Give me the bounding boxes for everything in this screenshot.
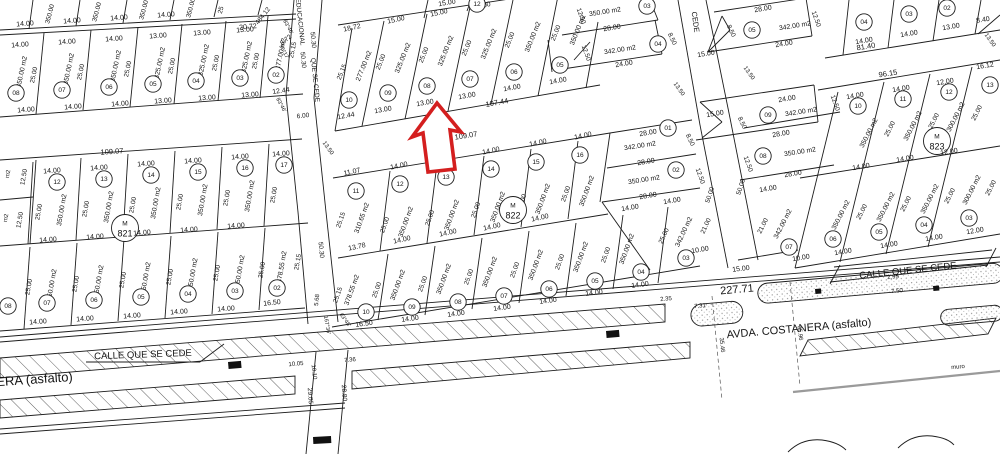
dimension-label: 25.15 xyxy=(336,63,349,81)
dimension-label: 25.00 xyxy=(600,246,612,264)
parcel-number: 10 xyxy=(345,97,353,104)
dimension-label: 14.00 xyxy=(880,240,899,250)
parcel-number: 11 xyxy=(900,96,907,103)
dimension-label: 14.00 xyxy=(834,247,853,257)
parcel-number: 08 xyxy=(4,303,12,310)
dimension-label: 227.71 xyxy=(720,282,755,297)
culvert-mark xyxy=(815,288,821,294)
parcel-number: 06 xyxy=(90,297,98,304)
parcel-number: 09 xyxy=(408,304,416,311)
dimension-label: 350.00 xyxy=(91,1,103,22)
parcel-number: 05 xyxy=(137,294,145,301)
dimension-label: 350.00 m2 xyxy=(56,193,69,226)
dimension-label: 14.00 xyxy=(631,281,649,290)
culvert-mark xyxy=(606,330,620,338)
dimension-label: 13.50 xyxy=(983,32,997,48)
boundary-line xyxy=(566,223,576,296)
shore-arc xyxy=(898,436,954,448)
dimension-label: 14.00 xyxy=(447,310,465,319)
parcel-number: 13 xyxy=(100,176,108,183)
culvert-mark xyxy=(933,285,939,291)
dimension-label: 325.00 m2 xyxy=(394,42,413,75)
dimension-label: 350.00 m2 xyxy=(397,206,415,239)
dimension-label: 50.30 xyxy=(298,52,307,69)
parcel-number: 03 xyxy=(231,288,239,295)
dimension-label: 378.55 m2 xyxy=(343,274,361,307)
boundary-line xyxy=(708,36,812,52)
dimension-label: 350.00 m2 xyxy=(63,52,77,85)
dimension-label: 350.00 m2 xyxy=(481,256,499,289)
cadastral-plan-canvas: 350.00350.00350.00350.0025484.1214.0014.… xyxy=(0,0,1000,454)
cadastral-plan: 350.00350.00350.00350.0025484.1214.0014.… xyxy=(0,0,1000,454)
shore-arc xyxy=(788,440,846,452)
dimension-label: 350.00 m2 xyxy=(435,263,453,296)
street-label-que-se-cede: QUE SE CEDE xyxy=(309,58,321,104)
dimension-label: 13.00 xyxy=(241,91,259,99)
dimension-label: 350.00 m2 xyxy=(103,190,116,223)
parcel-number: 03 xyxy=(643,3,651,10)
dimension-label: 25.00 xyxy=(269,186,279,204)
dimension-label: 25.00 xyxy=(463,268,475,286)
dimension-label: 11.07 xyxy=(343,167,361,177)
parcel-number: 04 xyxy=(184,291,192,298)
dimension-label: 7.31 xyxy=(694,303,707,310)
dimension-label: 14.00 xyxy=(585,289,603,298)
parcel-number: 05 xyxy=(875,229,883,236)
dimension-label: 13.00 xyxy=(198,94,216,102)
parcel-number: 13 xyxy=(442,174,450,181)
parcel-number: 16 xyxy=(576,152,584,159)
parcel-number: 02 xyxy=(943,5,951,12)
parcel-number: 03 xyxy=(905,11,913,18)
dimension-label: 14.00 xyxy=(105,35,123,43)
dimension-label: 25.00 xyxy=(118,271,128,289)
dimension-label: 16.12 xyxy=(976,61,995,71)
parcel-number: 14 xyxy=(147,172,155,179)
dimension-label: 25.00 xyxy=(211,54,221,72)
dimension-label: 13.00 xyxy=(193,29,211,37)
dimension-label: 350.00 m2 xyxy=(876,191,897,223)
dimension-label: 25.00 xyxy=(554,253,566,271)
parcel-number: 06 xyxy=(105,84,113,91)
dimension-label: 25.00 xyxy=(34,203,44,221)
dimension-label: 25.00 xyxy=(76,63,86,81)
dimension-label: 12.44 xyxy=(272,87,290,96)
dimension-label: 2.35 xyxy=(660,296,673,303)
dimension-label: 14.00 xyxy=(549,76,568,86)
dimension-label: 12.50 xyxy=(742,155,754,173)
wall-line xyxy=(793,371,1000,392)
dimension-label: 350.00 m2 xyxy=(628,174,661,186)
dimension-label: 14.00 xyxy=(110,14,128,22)
dimension-label: 25.00 xyxy=(509,261,521,279)
dimension-label: 28.00 xyxy=(784,169,803,179)
dimension-label: 14.00 xyxy=(503,83,522,93)
dimension-label: 12.50 xyxy=(694,167,706,185)
dimension-label: 25.00 xyxy=(970,104,984,122)
dimension-label: 35.46 xyxy=(718,337,726,353)
parcel-number: 14 xyxy=(487,166,495,173)
dimension-label: 342.00 m2 xyxy=(773,208,794,240)
parcel-number: 16 xyxy=(241,165,249,172)
dimension-label: 14.00 xyxy=(482,146,501,157)
dimension-label: 350.00 m2 xyxy=(920,183,941,215)
dimension-label: 13.00 xyxy=(416,98,435,108)
boundary-line xyxy=(700,85,814,102)
parcel-number: 08 xyxy=(423,83,431,90)
dimension-label: 300.00 m2 xyxy=(946,101,967,133)
dimension-label: 15.00 xyxy=(706,109,725,119)
parcel-number: 09 xyxy=(764,112,772,119)
boundary-line xyxy=(696,122,818,140)
dimension-label: 12.50 xyxy=(19,168,29,186)
dimension-label: 15.00 xyxy=(430,8,449,19)
dimension-label: 25.00 xyxy=(984,179,998,197)
dimension-label: 12.50 xyxy=(15,211,25,229)
dimension-label: 14.00 xyxy=(621,203,640,213)
parcel-number: 07 xyxy=(500,293,508,300)
dimension-label: 10.00 xyxy=(792,253,811,263)
dimension-label: 342.00 m2 xyxy=(779,20,812,32)
dimension-label: 14.00 xyxy=(157,11,175,19)
dimension-label: 350.00 m2 xyxy=(389,269,407,302)
parcel-number: 04 xyxy=(192,78,200,85)
dimension-label: 14.00 xyxy=(63,17,81,25)
boundary-line xyxy=(888,0,894,48)
parcel-number: 12 xyxy=(945,89,953,96)
parcel-number: 12 xyxy=(53,179,61,186)
dimension-label: 350.00 m2 xyxy=(150,186,163,219)
dimension-label: 14.00 xyxy=(483,222,502,233)
boundary-line xyxy=(326,212,338,322)
dimension-label: 28.00 xyxy=(637,157,656,167)
dimension-label: 21.00 xyxy=(756,217,770,235)
dimension-label: 350.00 m2 xyxy=(197,183,210,216)
dimension-label: 28.00 xyxy=(639,128,658,138)
dimension-label: 14.00 xyxy=(900,29,919,39)
dimension-label: 8.40 xyxy=(976,16,991,25)
dimension-label: 25.00 xyxy=(71,275,81,293)
dimension-label: 25.15 xyxy=(335,211,347,229)
dimension-label: 13.00 xyxy=(236,26,254,34)
parcel-number: 05 xyxy=(748,27,756,34)
parcel-number: 13 xyxy=(986,82,994,89)
parcel-number: 17 xyxy=(280,162,288,169)
boundary-line xyxy=(0,197,33,200)
dimension-label: 7.36 xyxy=(344,357,357,364)
dimension-label: 25.00 xyxy=(658,227,671,245)
dimension-label: 25.00 xyxy=(379,216,391,234)
dimension-label: 50.00 xyxy=(735,178,747,196)
dimension-label: 350.00 m2 xyxy=(589,6,622,18)
block-number-m822: M xyxy=(510,203,515,210)
dimension-label: 25.00 xyxy=(470,201,482,219)
street-label-cede: CEDE xyxy=(690,11,702,33)
street-label-costanera: COSTANERA (asfalto) xyxy=(0,369,73,393)
parcel-number: 02 xyxy=(273,285,281,292)
boundary-line xyxy=(260,16,268,98)
dimension-label: 14.00 xyxy=(170,308,188,316)
boundary-line xyxy=(424,0,428,18)
parcel-number: 04 xyxy=(920,222,928,229)
parcel-number: 06 xyxy=(829,236,837,243)
boundary-line xyxy=(933,0,939,41)
dimension-label: m2 xyxy=(3,213,10,223)
boundary-line xyxy=(556,54,662,70)
dimension-label: 14.00 xyxy=(76,315,94,323)
culvert-mark xyxy=(313,436,331,444)
boundary-line xyxy=(333,133,610,178)
dimension-label: 325.00 m2 xyxy=(154,46,168,79)
dimension-label: 25.15 xyxy=(293,253,303,271)
block-number-m823: M xyxy=(934,134,939,141)
dimension-label: 350.00 m2 xyxy=(618,233,636,266)
dimension-label: 24.00 xyxy=(615,59,634,69)
dimension-label: 350.00 m2 xyxy=(443,199,461,232)
dimension-label: 14.00 xyxy=(574,131,593,142)
parcel-number: 07 xyxy=(466,76,474,83)
dimension-label: 13.78 xyxy=(348,242,367,253)
dimension-label: 14.00 xyxy=(16,20,34,28)
dimension-label: 14.00 xyxy=(180,226,198,234)
dimension-label: 325.00 m2 xyxy=(437,35,456,68)
street-label-educacional: EDUCACIONAL xyxy=(294,0,306,46)
dimension-label: 350.00 m2 xyxy=(527,249,545,282)
dimension-label: 14.00 xyxy=(39,236,57,244)
dimension-label: 325.00 m2 xyxy=(198,43,212,76)
parcel-number: 12 xyxy=(473,1,481,8)
parcel-number: 07 xyxy=(43,300,51,307)
parcel-number: 06 xyxy=(510,69,518,76)
dimension-label: 50.30 xyxy=(308,32,317,49)
dimension-label: 14.00 xyxy=(401,315,419,324)
dimension-label: 15.00 xyxy=(387,15,406,26)
dimension-label: 13.00 xyxy=(154,97,172,105)
dimension-label: 25.00 xyxy=(855,203,869,221)
dimension-label: 28.00 xyxy=(754,4,773,14)
dimension-label: 14.00 xyxy=(852,162,871,172)
dimension-label: 342.00 m2 xyxy=(624,140,657,152)
dimension-label: 18.72 xyxy=(343,23,362,34)
parcel-number: 08 xyxy=(759,153,767,160)
dimension-label: 14.00 xyxy=(64,103,82,111)
dimension-label: 25.00 xyxy=(212,264,222,282)
dimension-label: 277.00 m2 xyxy=(355,50,374,83)
dimension-label: 325.00 m2 xyxy=(480,28,499,61)
dimension-label: 14.00 xyxy=(217,305,235,313)
boundary-line xyxy=(170,151,175,233)
parcel-number: 10 xyxy=(362,309,370,316)
boundary-line xyxy=(338,214,608,258)
dimension-label: 25.00 xyxy=(251,52,261,70)
dimension-label: 14.00 xyxy=(111,100,129,108)
dimension-label: 13.50 xyxy=(321,140,335,156)
dimension-label: 28.00 xyxy=(603,23,622,33)
parcel-number: 11 xyxy=(353,188,360,195)
dimension-label: 12.00 xyxy=(940,147,959,157)
dimension-label: 24.00 xyxy=(778,94,797,104)
dimension-label: 6.00 xyxy=(296,112,310,120)
boundary-line xyxy=(76,158,81,240)
dimension-label: m2 xyxy=(5,169,12,179)
dimension-label: 25.00 xyxy=(24,278,34,296)
dimension-label: 14.00 xyxy=(17,106,35,114)
dimension-label: 14.00 xyxy=(123,312,141,320)
dimension-label: 25.00 xyxy=(417,275,429,293)
dimension-label: 350.00 m2 xyxy=(784,146,817,158)
dimension-label: 10.10 xyxy=(310,364,318,380)
dimension-label: 25.00 xyxy=(29,66,39,84)
dimension-label: 24.00 xyxy=(775,39,794,49)
parcel-number: 02 xyxy=(272,72,280,79)
parcel-number: 15 xyxy=(194,169,202,176)
parcel-number: 06 xyxy=(545,286,553,293)
dimension-label: 350.00 m2 xyxy=(16,55,30,88)
dimension-label: 25.00 xyxy=(175,193,185,211)
boundary-line xyxy=(427,164,437,243)
boundary-line xyxy=(548,40,552,72)
dimension-label: 25.00 xyxy=(883,120,897,138)
parcel-number: 05 xyxy=(591,278,599,285)
dimension-label: 50.00 xyxy=(704,186,716,204)
dimension-label: 14.00 xyxy=(133,229,151,237)
parcel-number: 03 xyxy=(682,255,690,262)
dimension-label: 25.00 xyxy=(257,261,267,279)
dimension-label: 25.00 xyxy=(899,195,913,213)
boundary-line xyxy=(0,139,302,160)
parcel-number: 09 xyxy=(384,90,392,97)
dimension-label: 16.50 xyxy=(263,299,281,308)
dimension-label: 10.00 xyxy=(691,245,710,255)
dimension-label: 342.00 m2 xyxy=(674,216,694,248)
dimension-label: 14.00 xyxy=(663,196,682,206)
boundary-line xyxy=(380,171,390,251)
dimension-label: 29.05 xyxy=(306,388,314,405)
dimension-label: 14.00 xyxy=(539,297,557,306)
dimension-label: 8.50 xyxy=(684,133,696,148)
dimension-label: 12.44 xyxy=(337,111,356,121)
boundary-line xyxy=(217,147,222,229)
dimension-label: 14.00 xyxy=(86,233,104,241)
dimension-label: 12.50 xyxy=(829,94,841,112)
dimension-label: 310.65 m2 xyxy=(353,202,371,235)
dimension-label: 25 xyxy=(217,5,226,14)
dimension-label: 13.50 xyxy=(742,65,756,81)
dimension-label: 350.00 xyxy=(44,3,56,24)
parcel-number: 15 xyxy=(532,159,540,166)
parcel-number: 07 xyxy=(58,87,66,94)
dimension-label: 25.00 xyxy=(167,57,177,75)
dimension-label: 14.00 xyxy=(393,235,412,246)
boundary-line xyxy=(264,144,269,226)
dimension-label: 28.80 xyxy=(340,385,348,402)
dimension-label: 14.00 xyxy=(58,38,76,46)
dimension-label: 28.00 xyxy=(772,129,791,139)
boundary-line xyxy=(338,350,348,454)
parcel-number: 03 xyxy=(965,215,973,222)
dimension-label: 15.00 xyxy=(732,265,750,274)
dimension-label: 350.00 m2 xyxy=(534,183,552,216)
boundary-line xyxy=(314,98,326,212)
dimension-label: 25.00 xyxy=(123,60,133,78)
parcel-number: 12 xyxy=(396,181,404,188)
parcel-number: 08 xyxy=(454,299,462,306)
dimension-label: 13.50 xyxy=(672,81,686,97)
parcel-number: 10 xyxy=(854,103,862,110)
dimension-label: 14.00 xyxy=(925,233,944,243)
dimension-label: 25.00 xyxy=(222,189,232,207)
dimension-label: 14.00 xyxy=(531,213,550,224)
dimension-label: 2.95 xyxy=(887,274,900,281)
dimension-label: 14.00 xyxy=(493,304,511,313)
boundary-line xyxy=(519,231,529,303)
dimension-label: 342.00 m2 xyxy=(604,44,637,56)
dimension-label: 107.44 xyxy=(485,96,509,109)
parcel-number: 08 xyxy=(12,90,20,97)
dimension-label: 8.50 xyxy=(666,32,678,47)
dimension-label: 350.00 xyxy=(185,0,197,19)
dimension-label: 12.50 xyxy=(810,10,822,28)
dimension-label: 13.00 xyxy=(149,32,167,40)
dimension-label: 378.55 m2 xyxy=(276,250,289,283)
parcel-number: 04 xyxy=(860,19,868,26)
block-number-m822: 822 xyxy=(505,210,520,220)
parcel-number: 01 xyxy=(664,125,672,132)
dimension-label: 25.00 xyxy=(128,196,138,214)
dimension-label: 28.00 xyxy=(639,191,658,201)
wall-label-muro: muro xyxy=(951,364,966,371)
boundary-line xyxy=(843,0,849,55)
dimension-label: 14.00 xyxy=(11,41,29,49)
dimension-label: 109.07 xyxy=(100,146,124,157)
dimension-label: 7.50 xyxy=(891,288,904,295)
dimension-label: 13.00 xyxy=(458,91,477,101)
dimension-label: 10.05 xyxy=(288,361,304,368)
dimension-label: 300.00 m2 xyxy=(962,174,983,206)
dimension-label: 350.00 m2 xyxy=(244,179,257,212)
dimension-label: 14.00 xyxy=(529,138,548,149)
dimension-label: 35.96 xyxy=(796,325,804,341)
dimension-label: 350.00 m2 xyxy=(572,241,590,274)
parcel-number: 04 xyxy=(637,269,645,276)
dimension-label: 350.00 m2 xyxy=(110,49,124,82)
parcel-number: 07 xyxy=(785,244,793,251)
dimension-label: 350.00 m2 xyxy=(859,117,880,149)
dimension-label: 12.00 xyxy=(966,226,985,236)
dimension-label: 8.50 xyxy=(725,24,737,39)
dimension-label: 350.00 m2 xyxy=(524,21,543,54)
dimension-label: 25.00 xyxy=(165,268,175,286)
dimension-label: 25.00 xyxy=(943,187,957,205)
dimension-label: 14.00 xyxy=(29,318,47,326)
dimension-label: 15.00 xyxy=(697,49,716,59)
dimension-label: 12.50 xyxy=(580,44,592,62)
parcel-number: 03 xyxy=(236,75,244,82)
parcel-number: 05 xyxy=(556,62,564,69)
dimension-label: 14.00 xyxy=(896,154,915,164)
dimension-label: 350.00 m2 xyxy=(578,175,596,208)
parcel-number: 05 xyxy=(149,81,157,88)
block-number-m821: 821 xyxy=(117,228,132,238)
dimension-label: 83°46' xyxy=(274,97,287,114)
road-hatch-strip xyxy=(352,342,690,389)
dimension-label: 13.00 xyxy=(942,22,961,32)
boundary-line xyxy=(806,0,812,36)
dimension-label: 21.00 xyxy=(700,217,713,235)
dimension-label: 50.30 xyxy=(316,242,325,259)
dimension-label: 350.00 m2 xyxy=(903,110,924,142)
dimension-label: 14.00 xyxy=(390,161,409,172)
